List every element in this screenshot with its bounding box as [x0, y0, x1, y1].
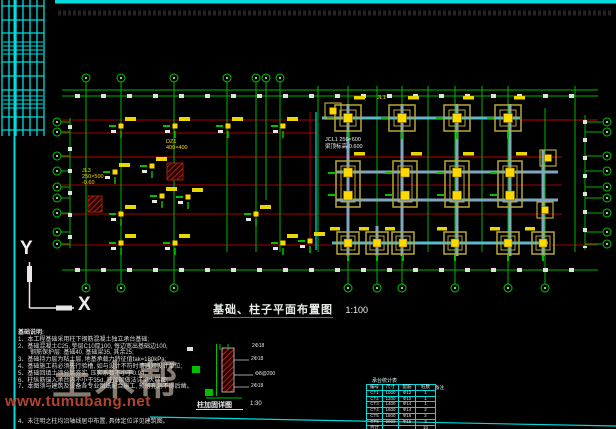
cell [399, 425, 416, 429]
ucs-y-label: Y [20, 238, 33, 260]
notes-line: 3、基础持力层为粘土层, 地基承载力特征值fak=180kPa; [18, 357, 193, 364]
notes-line: 5、基础回填土须分层夯实, 压实系数不小于0.94; [18, 371, 193, 378]
table-row: 合计10 [367, 425, 436, 429]
column-markers [103, 117, 325, 255]
foundation-notes: 基础说明: 1、本工程基础采用柱下钢筋混凝土独立承台基础; 2、基础混凝土C25… [18, 330, 193, 391]
beam-annotation-line1: JCL1 250×600 [325, 137, 363, 144]
ucs-icon [27, 262, 74, 311]
watermark-url: www.tumubang.net [5, 393, 151, 410]
sheet-top-border [55, 0, 616, 4]
beam-grid-red [62, 112, 598, 252]
drawing-scale: 1:100 [345, 305, 368, 315]
ucs-x-label: X [78, 294, 91, 316]
notes-last-line: 4、未注明之柱均沿轴线居中布置, 具体定位详见建筑图。 [18, 416, 169, 425]
cell [383, 425, 399, 429]
notes-line: 7、本图须与建筑及设备各专业图纸配合施工, 预留孔洞不得后凿。 [18, 384, 193, 391]
axis-bubbles [53, 74, 611, 292]
pile-caps [325, 96, 556, 261]
yellow-label-a3: -0.60 [82, 180, 104, 186]
yellow-label-c: JL1 [377, 95, 386, 101]
cell: 10 [416, 425, 436, 429]
drawing-title: 基础、柱子平面布置图 [213, 304, 333, 318]
stats-table-note: 备注 [435, 385, 444, 391]
cad-drawing-sheet: 土木帮 www.tumubang.net Y X 基础、柱子平面布置图 1:10… [0, 0, 616, 429]
yellow-label-b: DZ1 400×400 [166, 139, 188, 151]
detail-top-label: 2Φ18 [252, 343, 264, 349]
beam-annotation: JCL1 250×600 梁顶标高-0.600 [325, 137, 363, 151]
detail-scale: 1:30 [250, 401, 262, 407]
notes-line: 1、本工程基础采用柱下钢筋混凝土独立承台基础; [18, 337, 193, 344]
stats-table: 编号 尺寸 配筋 桩数 CT11000Φ121 CT21200Φ121 CT31… [366, 384, 436, 429]
detail-caption: 柱加固详图 [197, 400, 232, 410]
stats-table-title: 承台统计表 [372, 377, 397, 384]
detail-side-label-1: 2Φ18 [251, 356, 263, 362]
notes-line: 4、基础施工前必须先行验槽, 如与设计不符时请通知设计单位; [18, 364, 193, 371]
cell: 合计 [367, 425, 383, 429]
detail-side-label-3: 2Φ18 [251, 383, 263, 389]
yellow-label-a: JL3 250×500 -0.60 [82, 168, 104, 186]
detail-side-label-2: Φ8@200 [255, 371, 275, 377]
yellow-label-b2: 400×400 [166, 145, 188, 151]
beam-annotation-line2: 梁顶标高-0.600 [325, 144, 363, 151]
notes-heading: 基础说明: [18, 330, 193, 337]
drawing-title-block: 基础、柱子平面布置图 1:100 [213, 300, 368, 318]
